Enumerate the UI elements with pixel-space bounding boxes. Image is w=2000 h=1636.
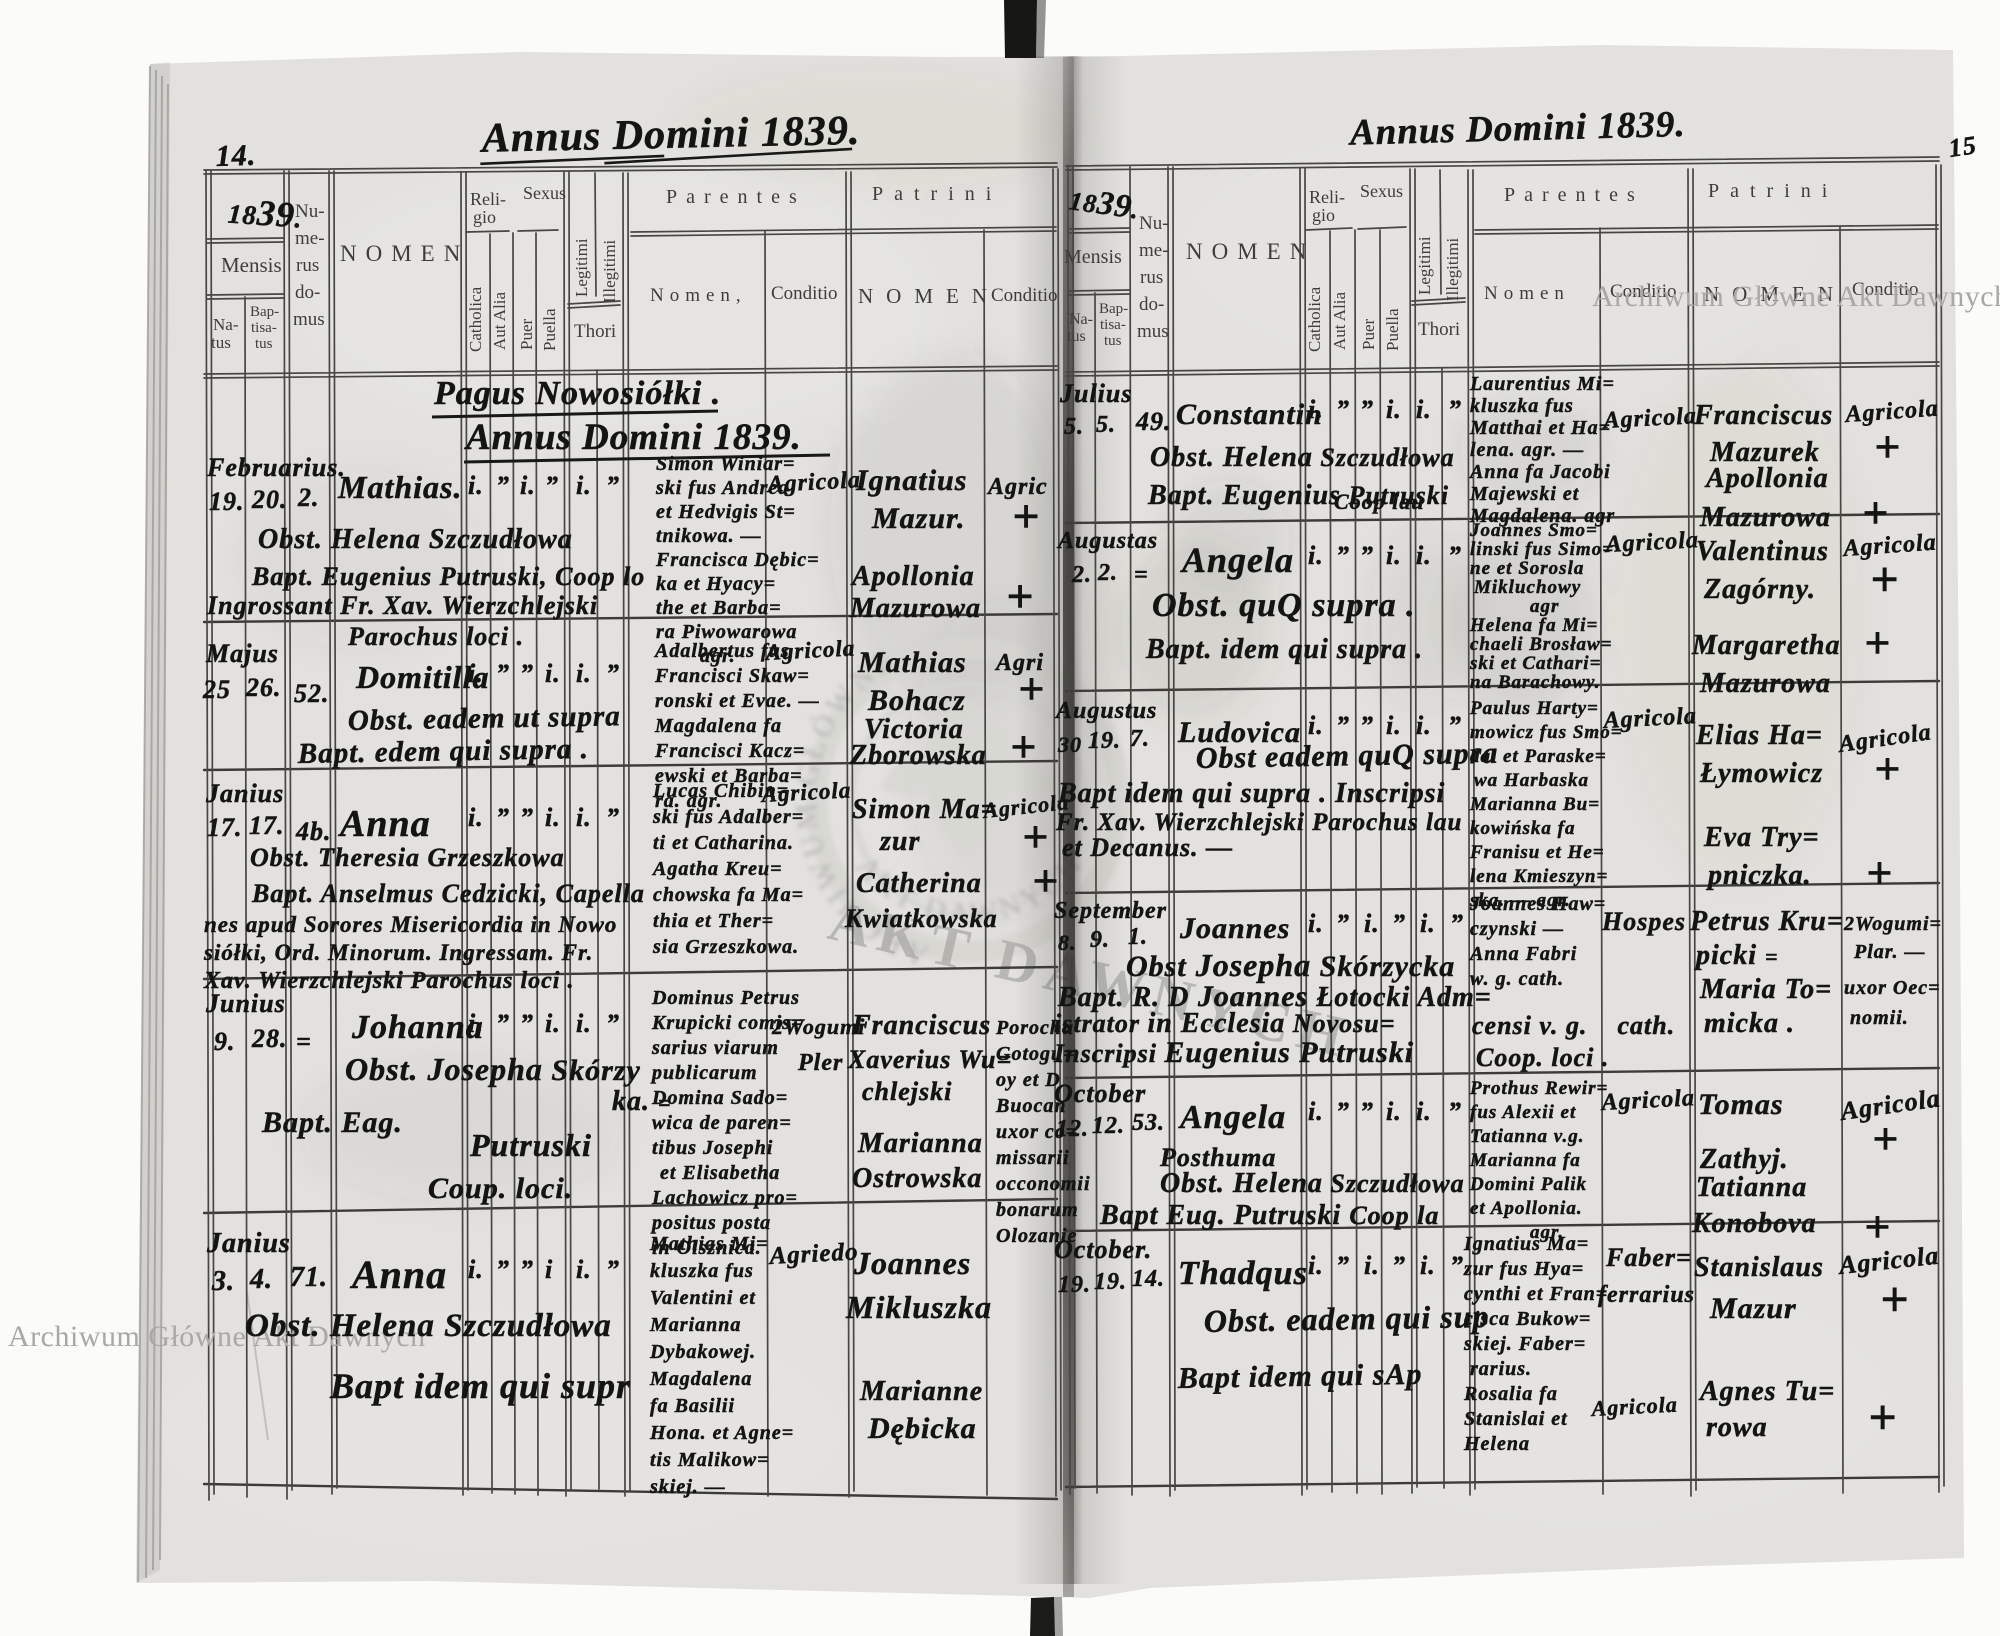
svg-text:Illegitimi: Illegitimi xyxy=(600,239,619,303)
svg-text:Marianne: Marianne xyxy=(859,1376,983,1407)
svg-text:September: September xyxy=(1054,898,1167,924)
svg-text:52.: 52. xyxy=(294,679,330,708)
svg-text:Legitimi: Legitimi xyxy=(1415,236,1434,295)
svg-text:Bapt idem qui supra . Ins: Bapt idem qui supra . Inscripsi xyxy=(1057,778,1445,809)
svg-text:Inscripsi Eugenius Putruski: Inscripsi Eugenius Putruski xyxy=(1053,1036,1414,1069)
svg-text:Conditio: Conditio xyxy=(991,285,1058,306)
svg-text:Obst. eadem ut supra: Obst. eadem ut supra xyxy=(348,700,622,737)
svg-text:Patrini: Patrini xyxy=(1708,180,1838,202)
svg-text:Obst. Helena Szczudłowa: Obst. Helena Szczudłowa xyxy=(1150,442,1455,473)
svg-text:Mensis: Mensis xyxy=(221,253,282,277)
svg-text:Faber=: Faber= xyxy=(1605,1243,1692,1272)
svg-text:Apollonia: Apollonia xyxy=(850,561,975,592)
svg-text:19.: 19. xyxy=(1058,1272,1091,1298)
svg-text:Thadqus: Thadqus xyxy=(1178,1255,1308,1292)
svg-text:Mathias: Mathias xyxy=(857,646,967,679)
svg-text:Tatianna: Tatianna xyxy=(1696,1172,1807,1203)
svg-text:Bapt Eug. Putruski Coop la: Bapt Eug. Putruski Coop la xyxy=(1099,1200,1439,1231)
svg-text:Apollonia: Apollonia xyxy=(1704,463,1829,494)
svg-text:Mensis: Mensis xyxy=(1064,246,1122,268)
svg-text:Petrus Kru=: Petrus Kru= xyxy=(1689,906,1844,937)
svg-text:siółki, Ord. Minorum. Ingre: siółki, Ord. Minorum. Ingressam. Fr. xyxy=(203,940,593,965)
svg-text:do-: do- xyxy=(295,282,320,303)
svg-text:chlejski: chlejski xyxy=(862,1077,952,1106)
svg-text:Simon Ma=: Simon Ma= xyxy=(852,794,998,825)
svg-text:mus: mus xyxy=(1137,321,1169,342)
svg-text:Nu-: Nu- xyxy=(1139,213,1169,234)
svg-text:Parentes: Parentes xyxy=(1504,184,1644,206)
svg-text:Angela: Angela xyxy=(1178,1099,1286,1136)
svg-text:14.: 14. xyxy=(215,139,257,173)
svg-text:Tomas: Tomas xyxy=(1698,1088,1784,1121)
svg-text:Joannes: Joannes xyxy=(1179,912,1290,945)
svg-text:+: + xyxy=(1880,1271,1910,1327)
svg-text:Mikluszka: Mikluszka xyxy=(845,1289,992,1325)
svg-text:tus: tus xyxy=(1104,333,1122,349)
svg-text:nes apud Sorores Misericordia: nes apud Sorores Misericordia in Nowo xyxy=(204,912,617,937)
svg-text:Agricola: Agricola xyxy=(1601,403,1698,434)
svg-text:Na-: Na- xyxy=(1069,311,1093,328)
svg-text:9.: 9. xyxy=(214,1027,236,1056)
svg-text:17.: 17. xyxy=(249,811,285,840)
svg-text:Fr. Xav. Wierzchlejski Paro: Fr. Xav. Wierzchlejski Parochus lau xyxy=(1055,809,1462,836)
svg-text:Agricola: Agricola xyxy=(765,467,862,498)
svg-text:Ignatius: Ignatius xyxy=(855,464,967,497)
svg-text:Obst. Theresia Grzeszkowa: Obst. Theresia Grzeszkowa xyxy=(250,843,565,872)
svg-text:Bapt. idem qui supra .: Bapt. idem qui supra . xyxy=(1145,634,1423,665)
svg-text:tisa-: tisa- xyxy=(1100,317,1126,333)
svg-text:Johanna: Johanna xyxy=(351,1009,484,1046)
svg-text:12.: 12. xyxy=(1092,1113,1125,1139)
svg-text:1.: 1. xyxy=(1128,924,1148,950)
svg-text:Nomen,: Nomen, xyxy=(650,285,747,306)
svg-text:14.: 14. xyxy=(1132,1266,1165,1292)
svg-text:4b.: 4b. xyxy=(295,817,332,846)
svg-text:Janius: Janius xyxy=(205,779,284,808)
svg-text:Aut Alia: Aut Alia xyxy=(490,291,509,350)
svg-text:Marianna: Marianna xyxy=(857,1128,983,1159)
svg-text:Patrini: Patrini xyxy=(872,183,1002,205)
svg-text:26.: 26. xyxy=(245,673,282,702)
svg-text:rus: rus xyxy=(1140,267,1163,288)
svg-text:Puer: Puer xyxy=(517,319,536,351)
svg-text:Thori: Thori xyxy=(1418,319,1460,340)
svg-text:Dębicka: Dębicka xyxy=(867,1412,977,1445)
svg-text:Franciscus: Franciscus xyxy=(851,1010,991,1041)
svg-text:17.: 17. xyxy=(207,813,243,842)
svg-text:Reli-: Reli- xyxy=(470,189,506,209)
svg-text:Mathias.: Mathias. xyxy=(337,469,462,505)
svg-text:8.: 8. xyxy=(1058,930,1077,955)
svg-text:Mazur: Mazur xyxy=(1709,1292,1797,1325)
svg-text:Bapt. Anselmus Cedzicki, Capel: Bapt. Anselmus Cedzicki, Capella xyxy=(251,879,645,908)
svg-text:Konobova: Konobova xyxy=(1691,1208,1817,1239)
svg-text:+: + xyxy=(1870,551,1900,607)
svg-text:+: + xyxy=(1866,847,1893,898)
svg-text:Obst. quQ supra .: Obst. quQ supra . xyxy=(1152,587,1416,624)
svg-text:19.: 19. xyxy=(1088,728,1121,754)
svg-text:Obst eadem quQ supra: Obst eadem quQ supra xyxy=(1196,737,1499,775)
svg-text:do-: do- xyxy=(1139,294,1164,315)
svg-text:Pagus Nowosiółki .: Pagus Nowosiółki . xyxy=(433,375,721,412)
svg-text:Junius: Junius xyxy=(205,989,286,1018)
svg-text:Paulus Harty=mowicz fus Smo=da: Paulus Harty=mowicz fus Smo=dai et Paras… xyxy=(1469,698,1623,911)
svg-text:19.: 19. xyxy=(1094,1269,1127,1295)
svg-text:Conditio: Conditio xyxy=(771,283,838,304)
svg-text:12.: 12. xyxy=(1056,1116,1089,1142)
svg-text:Catholica: Catholica xyxy=(466,286,485,352)
svg-text:Bapt. Eag.: Bapt. Eag. xyxy=(261,1106,403,1139)
svg-text:rus: rus xyxy=(296,255,319,276)
svg-text:Agricola: Agricola xyxy=(1601,703,1698,734)
svg-text:+: + xyxy=(1010,721,1037,772)
svg-text:53.: 53. xyxy=(1132,1110,1165,1136)
svg-text:5.: 5. xyxy=(1096,412,1116,438)
svg-text:censi v. g. cath.: censi v. g. cath. xyxy=(1472,1011,1675,1040)
svg-text:Elias Ha=: Elias Ha= xyxy=(1695,720,1823,751)
svg-text:Puer: Puer xyxy=(1359,319,1378,351)
svg-text:Mazur.: Mazur. xyxy=(871,502,966,535)
svg-text:=: = xyxy=(1134,562,1149,588)
svg-text:Obst Josepha Skórzycka: Obst Josepha Skórzycka xyxy=(1126,947,1455,983)
svg-text:Łymowicz: Łymowicz xyxy=(1699,758,1823,789)
svg-text:Mazurowa: Mazurowa xyxy=(1699,668,1831,699)
svg-text:Bapt idem qui sAp: Bapt idem qui sAp xyxy=(1177,1358,1423,1395)
svg-text:Joannes: Joannes xyxy=(853,1245,971,1281)
svg-text:Agricola: Agricola xyxy=(759,777,852,807)
svg-text:Coup. loci.: Coup. loci. xyxy=(428,1172,573,1205)
svg-text:Constantin: Constantin xyxy=(1176,398,1323,431)
svg-text:Sexus: Sexus xyxy=(1360,181,1403,201)
svg-text:Aut Alia: Aut Alia xyxy=(1330,291,1349,350)
svg-text:+: + xyxy=(1868,1389,1898,1445)
svg-text:Janius: Janius xyxy=(206,1228,291,1259)
svg-text:Puella: Puella xyxy=(540,308,559,351)
svg-text:Reli-: Reli- xyxy=(1309,187,1345,207)
svg-text:3.: 3. xyxy=(211,1266,235,1297)
svg-text:Bapt idem qui supr: Bapt idem qui supr xyxy=(329,1366,631,1406)
svg-text:Ingrossant Fr. Xav. Wierzch: Ingrossant Fr. Xav. Wierzchlejski xyxy=(206,591,598,620)
svg-text:2.: 2. xyxy=(297,483,320,512)
svg-text:Agricola: Agricola xyxy=(1589,1392,1678,1422)
svg-text:mus: mus xyxy=(293,309,325,330)
svg-text:71.: 71. xyxy=(290,1262,328,1293)
svg-text:Bohacz: Bohacz xyxy=(867,684,966,717)
svg-text:Annus Domini 1839.: Annus Domini 1839. xyxy=(478,108,861,162)
svg-text:et Decanus. —: et Decanus. — xyxy=(1062,833,1233,862)
svg-text:tus: tus xyxy=(255,336,273,352)
svg-text:Bap-: Bap- xyxy=(1099,301,1128,317)
svg-text:Augustas: Augustas xyxy=(1056,528,1158,554)
svg-text:Coop lau: Coop lau xyxy=(1334,489,1425,514)
svg-text:+: + xyxy=(1006,570,1034,623)
svg-text:Na-: Na- xyxy=(213,315,239,334)
svg-text:Xaverius Wu=: Xaverius Wu= xyxy=(847,1045,1012,1074)
svg-text:ferrarius: ferrarius xyxy=(1598,1282,1695,1308)
svg-text:gio: gio xyxy=(1312,205,1335,225)
svg-text:Coop. loci .: Coop. loci . xyxy=(1476,1043,1609,1072)
svg-text:9.: 9. xyxy=(1090,927,1110,953)
svg-text:picki =: picki = xyxy=(1694,940,1779,971)
svg-text:Archiwum Główne Akt Dawnych: Archiwum Główne Akt Dawnych xyxy=(1592,280,2000,313)
svg-text:Agricola: Agricola xyxy=(1599,1085,1696,1116)
svg-text:Nomen: Nomen xyxy=(1484,283,1570,304)
svg-text:Parochus loci .: Parochus loci . xyxy=(347,622,524,651)
svg-text:Zathyj.: Zathyj. xyxy=(1699,1144,1789,1175)
svg-text:Obst. Josepha Skórzy: Obst. Josepha Skórzy xyxy=(345,1051,641,1087)
svg-text:Legitimi: Legitimi xyxy=(572,238,591,297)
svg-text:Anna: Anna xyxy=(349,1252,447,1297)
svg-text:4.: 4. xyxy=(249,1264,273,1295)
svg-text:Agricola: Agricola xyxy=(1603,527,1700,558)
svg-text:pniczka.: pniczka. xyxy=(1706,860,1812,891)
svg-text:Puella: Puella xyxy=(1383,308,1402,351)
svg-text:Obst. eadem qui sup: Obst. eadem qui sup xyxy=(1203,1298,1489,1339)
svg-text:istrator in Ecclesia Novosu=: istrator in Ecclesia Novosu= xyxy=(1054,1008,1396,1039)
svg-text:Hospes: Hospes xyxy=(1601,907,1686,936)
svg-text:28.: 28. xyxy=(251,1024,288,1053)
svg-text:+: + xyxy=(1864,617,1891,668)
svg-text:Parentes: Parentes xyxy=(666,186,806,208)
svg-text:me-: me- xyxy=(295,228,325,249)
svg-text:+: + xyxy=(1018,663,1045,714)
svg-text:Majus: Majus xyxy=(205,639,279,668)
svg-text:Februarius.: Februarius. xyxy=(206,453,346,482)
svg-text:2.: 2. xyxy=(1097,560,1118,586)
svg-text:tus: tus xyxy=(211,333,231,352)
svg-text:Sexus: Sexus xyxy=(523,183,566,203)
svg-text:NOMEN: NOMEN xyxy=(858,284,1000,308)
svg-text:+: + xyxy=(1874,743,1901,794)
svg-text:Annus Domini 1839.: Annus Domini 1839. xyxy=(464,417,802,458)
svg-text:Bapt. edem qui supra .: Bapt. edem qui supra . xyxy=(297,733,590,770)
svg-text:=: = xyxy=(296,1027,312,1056)
svg-text:Angela: Angela xyxy=(1180,540,1294,580)
svg-text:20.: 20. xyxy=(251,485,288,514)
svg-text:+: + xyxy=(1012,490,1040,543)
svg-text:19.: 19. xyxy=(209,487,245,516)
svg-text:rowa: rowa xyxy=(1706,1412,1768,1443)
svg-text:30: 30 xyxy=(1057,732,1082,757)
svg-text:Obst. Helena Szczudłowa: Obst. Helena Szczudłowa xyxy=(245,1308,612,1344)
svg-text:Margaretha: Margaretha xyxy=(1691,630,1840,661)
svg-text:Thori: Thori xyxy=(574,321,616,342)
svg-text:Augustus: Augustus xyxy=(1054,698,1157,724)
svg-text:+: + xyxy=(1864,1201,1891,1252)
svg-text:Ostrowska: Ostrowska xyxy=(852,1163,982,1194)
svg-text:Franciscus: Franciscus xyxy=(1693,400,1833,431)
svg-text:Nu-: Nu- xyxy=(295,201,325,222)
svg-text:+: + xyxy=(1872,1113,1899,1164)
svg-text:49.: 49. xyxy=(1135,407,1172,436)
svg-text:7.: 7. xyxy=(1130,726,1150,752)
svg-text:Obst. Helena Szczudłowa: Obst. Helena Szczudłowa xyxy=(258,524,573,555)
svg-text:Valentinus: Valentinus xyxy=(1696,536,1829,567)
svg-text:2.: 2. xyxy=(1071,562,1092,588)
svg-text:Pler: Pler xyxy=(797,1050,843,1076)
svg-text:tus: tus xyxy=(1067,328,1086,345)
svg-text:Mazurowa: Mazurowa xyxy=(1699,502,1831,533)
svg-text:Agricola: Agricola xyxy=(763,635,856,665)
svg-text:5.: 5. xyxy=(1064,414,1084,440)
svg-text:+: + xyxy=(1862,487,1889,538)
svg-text:Kwiatkowska: Kwiatkowska xyxy=(844,904,998,933)
svg-text:October.: October. xyxy=(1054,1235,1152,1264)
svg-text:October: October xyxy=(1054,1079,1146,1108)
svg-text:Julius: Julius xyxy=(1059,379,1133,408)
svg-text:Bapt. Eugenius Putruski, Co: Bapt. Eugenius Putruski, Coop lo xyxy=(251,562,645,591)
svg-text:Catherina: Catherina xyxy=(856,868,982,899)
svg-text:gio: gio xyxy=(473,207,496,227)
svg-text:tisa-: tisa- xyxy=(251,320,277,336)
svg-text:zur: zur xyxy=(879,826,920,857)
svg-text:Catholica: Catholica xyxy=(1305,286,1324,352)
svg-text:micka .: micka . xyxy=(1704,1008,1795,1039)
svg-text:me-: me- xyxy=(1139,240,1169,261)
svg-text:Illegitimi: Illegitimi xyxy=(1443,237,1462,301)
svg-text:Obst. Helena Szczudłowa: Obst. Helena Szczudłowa xyxy=(1160,1168,1465,1199)
svg-text:NOMEN: NOMEN xyxy=(1186,239,1315,264)
svg-text:Zagórny.: Zagórny. xyxy=(1703,574,1816,605)
svg-text:NOMEN: NOMEN xyxy=(340,241,469,266)
svg-text:Eva Try=: Eva Try= xyxy=(1703,822,1819,853)
svg-text:Agnes Tu=: Agnes Tu= xyxy=(1698,1376,1835,1407)
svg-text:Mazurowa: Mazurowa xyxy=(849,593,981,624)
svg-text:Zborowska: Zborowska xyxy=(849,740,987,771)
svg-text:Putruski: Putruski xyxy=(469,1127,592,1163)
svg-text:+: + xyxy=(1874,421,1901,472)
svg-text:25: 25 xyxy=(202,675,231,704)
svg-text:15: 15 xyxy=(1947,130,1979,163)
svg-text:Stanislaus: Stanislaus xyxy=(1694,1252,1824,1283)
svg-text:Maria To=: Maria To= xyxy=(1699,974,1832,1005)
svg-text:Anna: Anna xyxy=(338,803,431,845)
svg-text:Agriedo: Agriedo xyxy=(767,1238,859,1270)
svg-text:Bap-: Bap- xyxy=(250,304,279,320)
